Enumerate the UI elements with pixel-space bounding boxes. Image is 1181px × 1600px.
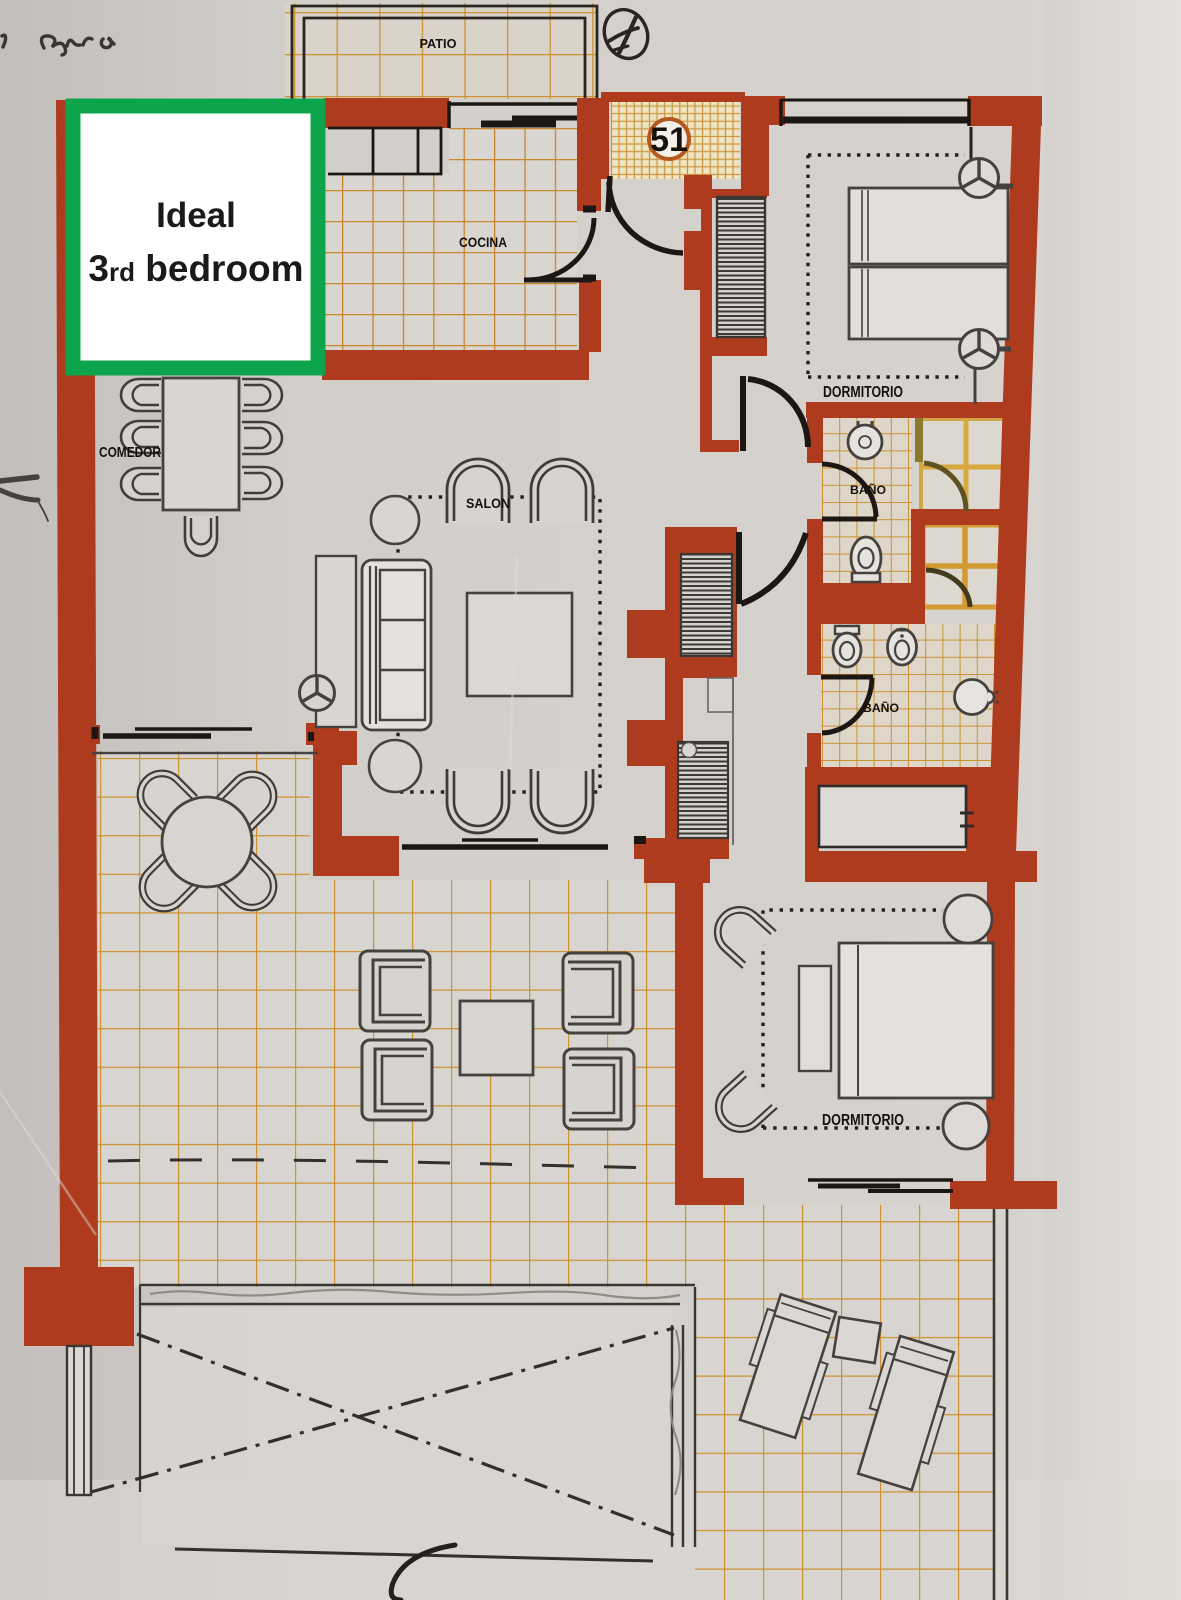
svg-text:Ideal: Ideal — [156, 196, 236, 235]
svg-text:DORMITORIO: DORMITORIO — [822, 1112, 904, 1129]
svg-text:51: 51 — [650, 121, 688, 159]
svg-text:DORMITORIO: DORMITORIO — [823, 384, 903, 401]
svg-text:BAÑO: BAÑO — [850, 482, 886, 497]
svg-text:SALON: SALON — [466, 496, 510, 511]
svg-text:COMEDOR: COMEDOR — [99, 444, 161, 461]
svg-text:COCINA: COCINA — [459, 234, 507, 250]
svg-text:PATIO: PATIO — [420, 37, 457, 51]
svg-text:BAÑO: BAÑO — [863, 700, 899, 715]
